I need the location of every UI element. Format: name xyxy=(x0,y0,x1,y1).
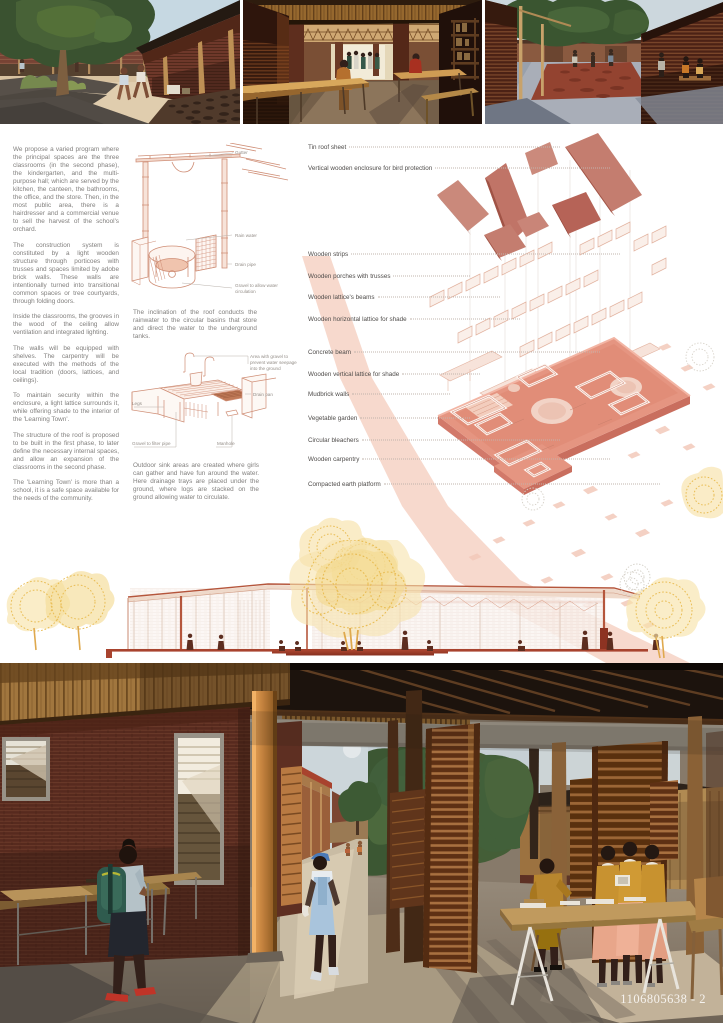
svg-text:Rain water: Rain water xyxy=(235,233,257,238)
svg-text:into the ground: into the ground xyxy=(250,366,281,371)
svg-text:circulation: circulation xyxy=(235,289,256,294)
svg-text:Manhole: Manhole xyxy=(217,441,235,446)
svg-text:Drain pipe: Drain pipe xyxy=(235,262,256,267)
svg-text:Gutter: Gutter xyxy=(235,150,248,155)
svg-text:Gravel to allow water: Gravel to allow water xyxy=(235,283,278,288)
svg-text:Legs: Legs xyxy=(132,401,143,406)
svg-text:Gravel to filter pipe: Gravel to filter pipe xyxy=(132,441,171,446)
svg-text:Drain pan: Drain pan xyxy=(253,392,273,397)
